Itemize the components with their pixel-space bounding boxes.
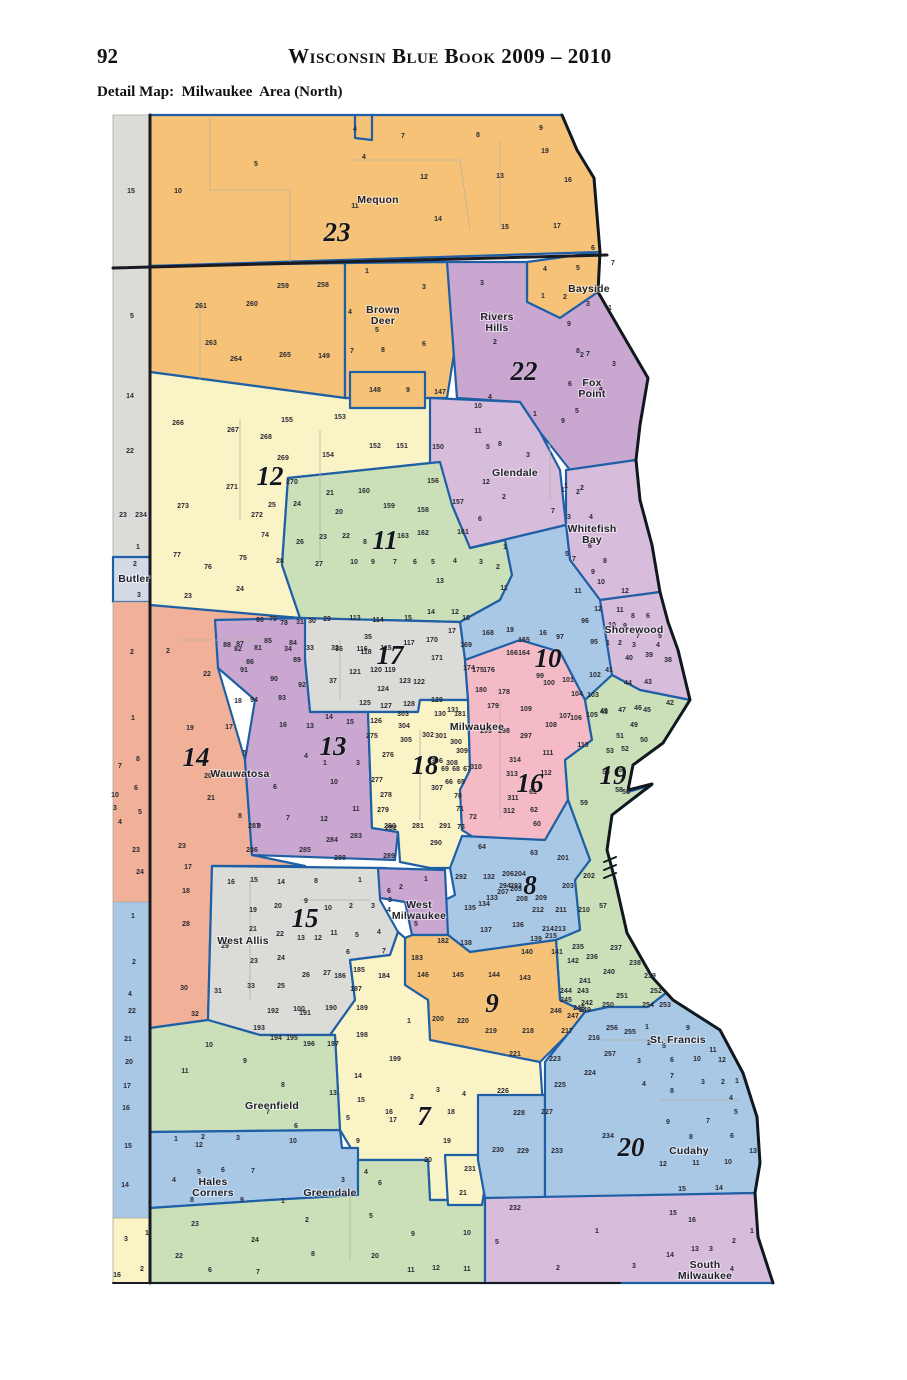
ward-number: 16 — [227, 879, 235, 886]
ward-number: 1 — [407, 1018, 411, 1025]
ward-number: 70 — [454, 793, 462, 800]
ward-number: 7 — [382, 948, 386, 955]
ward-number: 126 — [370, 718, 382, 725]
ward-number: 22 — [203, 671, 211, 678]
ward-number: 261 — [195, 303, 207, 310]
ward-number: 264 — [230, 356, 242, 363]
ward-number: 49 — [600, 708, 608, 715]
region-district-20-west-lobe — [478, 1095, 545, 1198]
ward-number: 8 — [381, 347, 385, 354]
ward-number: 307 — [431, 785, 443, 792]
ward-number: 111 — [543, 750, 554, 757]
district-number: 17 — [377, 640, 406, 670]
ward-number: 161 — [457, 529, 469, 536]
ward-number: 1 — [365, 268, 369, 275]
district-number: 7 — [417, 1101, 432, 1131]
ward-number: 158 — [417, 507, 429, 514]
ward-number: 24 — [136, 869, 144, 876]
ward-number: 16 — [279, 722, 287, 729]
ward-number: 7 — [286, 815, 290, 822]
ward-number: 271 — [226, 484, 238, 491]
ward-number: 17 — [123, 1083, 131, 1090]
ward-number: 13 — [749, 1148, 757, 1155]
ward-number: 19 — [541, 148, 549, 155]
ward-number: 24 — [251, 1237, 259, 1244]
ward-number: 6 — [134, 785, 138, 792]
ward-number: 6 — [346, 949, 350, 956]
ward-number: 210 — [578, 907, 590, 914]
ward-number: 93 — [278, 695, 286, 702]
ward-number: 9 — [567, 321, 571, 328]
ward-number: 4 — [462, 1091, 466, 1098]
ward-number: 17 — [225, 724, 233, 731]
ward-number: 3 — [709, 1246, 713, 1253]
ward-number: 186 — [334, 973, 346, 980]
ward-number: 195 — [286, 1035, 298, 1042]
ward-number: 21 — [124, 1036, 132, 1043]
ward-number: 7 — [401, 133, 405, 140]
ward-number: 12 — [432, 1265, 440, 1272]
district-number: 11 — [372, 525, 398, 555]
ward-number: 2 — [140, 1266, 144, 1273]
ward-number: 1 — [131, 715, 135, 722]
ward-number: 11 — [474, 428, 482, 435]
district-number: 18 — [412, 750, 440, 780]
ward-number: 8 — [476, 132, 480, 139]
ward-number: 1 — [595, 1228, 599, 1235]
ward-number: 168 — [482, 630, 494, 637]
ward-number: 26 — [296, 539, 304, 546]
ward-number: 6 — [568, 381, 572, 388]
ward-number: 9 — [356, 1138, 360, 1145]
ward-number: 9 — [243, 1058, 247, 1065]
ward-number: 209 — [535, 895, 547, 902]
ward-number: 73 — [457, 824, 465, 831]
ward-number: 3 — [388, 897, 392, 904]
ward-number: 85 — [264, 638, 272, 645]
ward-number: 15 — [346, 719, 354, 726]
ward-number: 2 — [132, 959, 136, 966]
ward-number: 65 — [457, 779, 465, 786]
ward-number: 17 — [184, 864, 192, 871]
city-label: Cudahy — [669, 1145, 709, 1157]
ward-number: 1 — [750, 1228, 754, 1235]
city-label: BrownDeer — [366, 304, 400, 327]
ward-number: 3 — [113, 805, 117, 812]
ward-number: 12 — [320, 816, 328, 823]
ward-number: 129 — [431, 697, 443, 704]
ward-number: 9 — [240, 1197, 244, 1204]
ward-number: 43 — [644, 679, 652, 686]
ward-number: 181 — [454, 711, 466, 718]
ward-number: 138 — [460, 940, 472, 947]
ward-number: 33 — [306, 645, 314, 652]
ward-number: 166 — [506, 650, 518, 657]
ward-number: 1 — [541, 293, 545, 300]
ward-number: 285 — [299, 847, 311, 854]
ward-number: 15 — [501, 224, 509, 231]
ward-number: 4 — [543, 266, 547, 273]
ward-number: 3 — [356, 760, 360, 767]
ward-number: 4 — [642, 1081, 646, 1088]
ward-number: 33 — [247, 983, 255, 990]
ward-number: 297 — [520, 733, 532, 740]
ward-number: 23 — [119, 512, 127, 519]
ward-number: 20 — [274, 903, 282, 910]
ward-number: 21 — [249, 926, 257, 933]
ward-number: 304 — [398, 723, 410, 730]
ward-number: 113 — [349, 615, 360, 622]
ward-number: 283 — [350, 833, 362, 840]
ward-number: 6 — [378, 1180, 382, 1187]
ward-number: 251 — [616, 993, 628, 1000]
ward-number: 116 — [356, 646, 367, 653]
ward-number: 32 — [331, 645, 339, 652]
ward-number: 183 — [411, 955, 423, 962]
ward-number: 9 — [371, 559, 375, 566]
ward-number: 249 — [579, 1007, 591, 1014]
ward-number: 305 — [400, 737, 412, 744]
ward-number: 148 — [369, 387, 381, 394]
ward-number: 238 — [629, 960, 641, 967]
ward-number: 247 — [567, 1013, 579, 1020]
ward-number: 108 — [545, 722, 557, 729]
ward-number: 4 — [353, 126, 357, 133]
ward-number: 16 — [385, 1109, 393, 1116]
ward-number: 292 — [455, 874, 467, 881]
ward-number: 180 — [475, 687, 487, 694]
ward-number: 105 — [586, 712, 598, 719]
ward-number: 28 — [276, 558, 284, 565]
ward-number: 4 — [488, 394, 492, 401]
ward-number: 309 — [456, 748, 468, 755]
ward-number: 19 — [506, 627, 514, 634]
ward-number: 79 — [269, 616, 277, 623]
ward-number: 1 — [131, 913, 135, 920]
ward-number: 10 — [324, 905, 332, 912]
ward-number: 7 — [611, 260, 615, 267]
ward-number: 200 — [432, 1016, 444, 1023]
ward-number: 28 — [182, 921, 190, 928]
ward-number: 268 — [260, 434, 272, 441]
ward-number: 92 — [298, 682, 306, 689]
ward-number: 26 — [302, 972, 310, 979]
ward-number: 221 — [509, 1051, 521, 1058]
ward-number: 24 — [236, 586, 244, 593]
ward-number: 15 — [250, 877, 258, 884]
ward-number: 69 — [441, 766, 449, 773]
ward-number: 8 — [311, 1251, 315, 1258]
district-number: 9 — [485, 988, 499, 1018]
ward-number: 32 — [191, 1011, 199, 1018]
ward-number: 241 — [579, 978, 591, 985]
ward-number: 219 — [485, 1028, 497, 1035]
ward-number: 141 — [551, 949, 563, 956]
ward-number: 50 — [640, 737, 648, 744]
ward-number: 5 — [565, 551, 569, 558]
ward-number: 1 — [424, 876, 428, 883]
ward-number: 8 — [670, 1088, 674, 1095]
ward-number: 12 — [659, 1161, 667, 1168]
ward-number: 213 — [554, 926, 566, 933]
ward-number: 1 — [564, 483, 568, 490]
ward-number: 3 — [701, 1079, 705, 1086]
ward-number: 223 — [549, 1056, 561, 1063]
ward-number: 3 — [371, 903, 375, 910]
ward-number: 60 — [533, 821, 541, 828]
ward-number: 7 — [706, 1118, 710, 1125]
ward-number: 4 — [348, 309, 352, 316]
ward-number: 84 — [289, 640, 297, 647]
ward-number: 187 — [350, 986, 362, 993]
ward-number: 44 — [624, 680, 632, 687]
ward-number: 10 — [693, 1056, 701, 1063]
ward-number: 288 — [334, 855, 346, 862]
ward-number: 45 — [643, 707, 651, 714]
ward-number: 35 — [364, 634, 372, 641]
ward-number: 9 — [539, 125, 543, 132]
ward-number: 5 — [243, 750, 247, 757]
ward-number: 228 — [513, 1110, 525, 1117]
ward-number: 123 — [399, 678, 411, 685]
ward-number: 14 — [121, 1182, 129, 1189]
ward-number: 159 — [383, 503, 395, 510]
city-label: West Allis — [217, 935, 269, 947]
ward-number: 207 — [497, 889, 509, 896]
ward-number: 12 — [621, 588, 629, 595]
ward-number: 289 — [383, 853, 395, 860]
ward-number: 10 — [474, 403, 482, 410]
ward-number: 8 — [689, 1134, 693, 1141]
ward-number: 216 — [588, 1035, 600, 1042]
ward-number: 2 — [496, 564, 500, 571]
ward-number: 314 — [509, 757, 521, 764]
ward-number: 7 — [393, 559, 397, 566]
ward-number: 230 — [492, 1147, 504, 1154]
ward-number: 16 — [113, 1272, 121, 1279]
ward-number: 4 — [453, 558, 457, 565]
ward-number: 87 — [236, 641, 244, 648]
ward-number: 18 — [462, 615, 470, 622]
ward-number: 12 — [195, 1142, 203, 1149]
ward-number: 155 — [281, 417, 293, 424]
ward-number: 106 — [570, 715, 582, 722]
ward-number: 59 — [580, 800, 588, 807]
ward-number: 157 — [452, 499, 464, 506]
ward-number: 146 — [417, 972, 429, 979]
ward-number: 1 — [606, 640, 610, 647]
ward-number: 57 — [599, 903, 607, 910]
ward-number: 124 — [377, 686, 389, 693]
ward-number: 260 — [246, 301, 258, 308]
ward-number: 2 — [130, 649, 134, 656]
ward-number: 215 — [545, 933, 557, 940]
ward-number: 144 — [488, 972, 500, 979]
ward-number: 16 — [688, 1217, 696, 1224]
ward-number: 151 — [396, 443, 408, 450]
ward-number: 2 — [133, 561, 137, 568]
ward-number: 258 — [317, 282, 329, 289]
ward-number: 189 — [356, 1005, 368, 1012]
ward-number: 3 — [526, 452, 530, 459]
ward-number: 3 — [632, 642, 636, 649]
ward-number: 8 — [498, 441, 502, 448]
ward-number: 13 — [691, 1246, 699, 1253]
district-number: 8 — [523, 870, 537, 900]
ward-number: 14 — [325, 714, 333, 721]
ward-number: 13 — [306, 723, 314, 730]
ward-number: 66 — [445, 779, 453, 786]
ward-number: 136 — [512, 922, 524, 929]
ward-number: 250 — [602, 1002, 614, 1009]
ward-number: 77 — [173, 552, 181, 559]
ward-number: 3 — [124, 1236, 128, 1243]
ward-number: 1 — [323, 760, 327, 767]
ward-number: 67 — [463, 766, 471, 773]
ward-number: 190 — [325, 1005, 337, 1012]
ward-number: 154 — [322, 452, 334, 459]
ward-number: 86 — [246, 659, 254, 666]
ward-number: 5 — [130, 313, 134, 320]
ward-number: 203 — [562, 883, 574, 890]
ward-number: 74 — [261, 532, 269, 539]
ward-number: 14 — [434, 216, 442, 223]
ward-number: 22 — [126, 448, 134, 455]
ward-number: 2 — [349, 903, 353, 910]
ward-number: 10 — [597, 579, 605, 586]
ward-number: 1 — [145, 1230, 149, 1237]
ward-number: 132 — [483, 874, 495, 881]
ward-number: 5 — [495, 1239, 499, 1246]
ward-number: 263 — [205, 340, 217, 347]
ward-number: 102 — [589, 672, 601, 679]
ward-number: 275 — [366, 733, 378, 740]
ward-number: 8 — [238, 813, 242, 820]
ward-number: 4 — [128, 991, 132, 998]
district-number: 13 — [320, 731, 347, 761]
district-number: 16 — [517, 768, 545, 798]
ward-number: 1 — [503, 544, 507, 551]
ward-number: 3 — [137, 592, 141, 599]
ward-number: 171 — [431, 655, 443, 662]
ward-number: 227 — [541, 1109, 553, 1116]
ward-number: 3 — [612, 361, 616, 368]
ward-number: 3 — [637, 1058, 641, 1065]
ward-number: 277 — [371, 777, 383, 784]
ward-number: 11 — [352, 806, 360, 813]
ward-number: 2 — [580, 485, 584, 492]
ward-number: 256 — [606, 1025, 618, 1032]
ward-number: 14 — [126, 393, 134, 400]
ward-number: 5 — [576, 265, 580, 272]
ward-number: 121 — [349, 669, 361, 676]
region-greenfield — [150, 1020, 340, 1132]
ward-number: 12 — [420, 174, 428, 181]
ward-number: 91 — [240, 667, 248, 674]
ward-number: 6 — [591, 245, 595, 252]
ward-number: 1 — [735, 1078, 739, 1085]
ward-number: 101 — [562, 677, 574, 684]
ward-number: 9 — [411, 1231, 415, 1238]
ward-number: 267 — [227, 427, 239, 434]
ward-number: 104 — [571, 691, 583, 698]
ward-number: 5 — [575, 408, 579, 415]
region-left-salmon-strip — [113, 602, 150, 902]
ward-number: 290 — [430, 840, 442, 847]
ward-number: 178 — [498, 689, 510, 696]
ward-number: 2 — [618, 640, 622, 647]
ward-number: 68 — [452, 766, 460, 773]
ward-number: 234 — [135, 512, 147, 519]
city-label: Milwaukee — [450, 721, 504, 733]
ward-number: 103 — [587, 692, 599, 699]
ward-number: 169 — [460, 642, 472, 649]
ward-number: 11 — [692, 1160, 700, 1167]
city-label: Bayside — [568, 283, 610, 295]
ward-number: 7 — [670, 1073, 674, 1080]
ward-number: 6 — [422, 341, 426, 348]
ward-number: 22 — [175, 1253, 183, 1260]
ward-number: 266 — [172, 420, 184, 427]
ward-number: 38 — [664, 657, 672, 664]
ward-number: 37 — [329, 678, 337, 685]
ward-number: 192 — [267, 1008, 279, 1015]
ward-number: 53 — [606, 748, 614, 755]
ward-number: 265 — [279, 352, 291, 359]
ward-number: 114 — [372, 617, 383, 624]
ward-number: 6 — [730, 1133, 734, 1140]
ward-number: 11 — [500, 585, 508, 592]
ward-number: 239 — [644, 973, 656, 980]
ward-number: 23 — [178, 843, 186, 850]
ward-number: 310 — [470, 764, 482, 771]
ward-number: 184 — [378, 973, 390, 980]
ward-number: 6 — [273, 784, 277, 791]
ward-number: 252 — [650, 988, 662, 995]
ward-number: 139 — [530, 936, 542, 943]
ward-number: 7 — [118, 763, 122, 770]
ward-number: 16 — [539, 630, 547, 637]
ward-number: 254 — [642, 1002, 654, 1009]
ward-number: 162 — [417, 530, 429, 537]
ward-number: 3 — [480, 280, 484, 287]
ward-number: 6 — [646, 613, 650, 620]
ward-number: 3 — [236, 1135, 240, 1142]
ward-number: 10 — [174, 188, 182, 195]
ward-number: 153 — [334, 414, 346, 421]
ward-number: 27 — [315, 561, 323, 568]
ward-number: 125 — [359, 700, 371, 707]
ward-number: 109 — [520, 706, 532, 713]
ward-number: 2 — [580, 352, 584, 359]
ward-number: 9 — [561, 418, 565, 425]
ward-number: 13 — [297, 935, 305, 942]
ward-number: 14 — [427, 609, 435, 616]
ward-number: 81 — [254, 645, 262, 652]
ward-number: 63 — [530, 850, 538, 857]
ward-number: 1 — [608, 305, 612, 312]
ward-number: 15 — [357, 1097, 365, 1104]
ward-number: 280 — [384, 823, 396, 830]
ward-number: 232 — [509, 1205, 521, 1212]
district-number: 10 — [535, 643, 563, 673]
ward-number: 122 — [413, 679, 425, 686]
ward-number: 2 — [410, 1094, 414, 1101]
ward-number: 11 — [709, 1047, 717, 1054]
ward-number: 312 — [503, 808, 515, 815]
district-number: 23 — [323, 217, 351, 247]
ward-number: 5 — [355, 932, 359, 939]
